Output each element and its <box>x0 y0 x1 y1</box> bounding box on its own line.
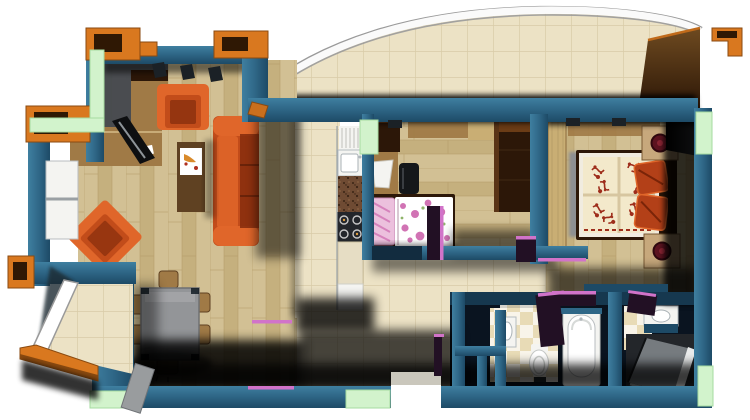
door-bedroom1 <box>427 206 444 260</box>
coffee-table <box>177 142 205 212</box>
wall-bottom-right <box>440 386 712 408</box>
shadow-living-right <box>256 108 300 258</box>
cap-box-left-small <box>8 256 34 288</box>
trim-hall-b <box>248 386 294 390</box>
wall-balcony-bottom <box>248 98 698 122</box>
wall-bath-divider <box>608 292 622 400</box>
cap-box-top-b <box>214 31 268 58</box>
apartment-floor-plan <box>0 0 750 420</box>
wall-bedroom1-bottom-dark <box>372 246 422 260</box>
wall-bath-left <box>452 292 465 388</box>
entrance-opening <box>391 385 441 420</box>
trim-hall-a <box>252 320 292 324</box>
mint-kitchen-top <box>360 120 378 154</box>
wall-bay-bottom <box>28 262 136 284</box>
floor-plan-stage <box>0 0 750 420</box>
armchair-top <box>157 84 209 130</box>
double-bed <box>576 150 677 240</box>
faucet <box>359 156 362 159</box>
corner-cap-top-right-inner <box>717 31 737 38</box>
shadow-sofa-left <box>205 140 215 218</box>
kitchen-base-counter <box>338 242 363 284</box>
sofa <box>213 116 259 246</box>
kitchen-sink-basin <box>341 154 358 172</box>
shadow-kitchen-bottom <box>296 298 374 332</box>
mint-entry <box>346 390 390 408</box>
wall-tub-edge <box>560 308 602 314</box>
mint-right-bottom <box>698 366 713 406</box>
mint-right-top <box>696 112 712 154</box>
kitchen-counter <box>338 176 363 212</box>
desk-chair-white <box>372 160 393 188</box>
mint-left-horizontal <box>30 118 104 132</box>
window-left <box>46 161 78 239</box>
entrance-threshold <box>391 372 441 385</box>
wardrobe-dark <box>494 120 532 212</box>
lamp-center <box>657 140 663 146</box>
wall-master-entry <box>536 246 588 259</box>
wall-bath-stub-h <box>455 346 506 356</box>
door-shower-room <box>627 290 658 316</box>
